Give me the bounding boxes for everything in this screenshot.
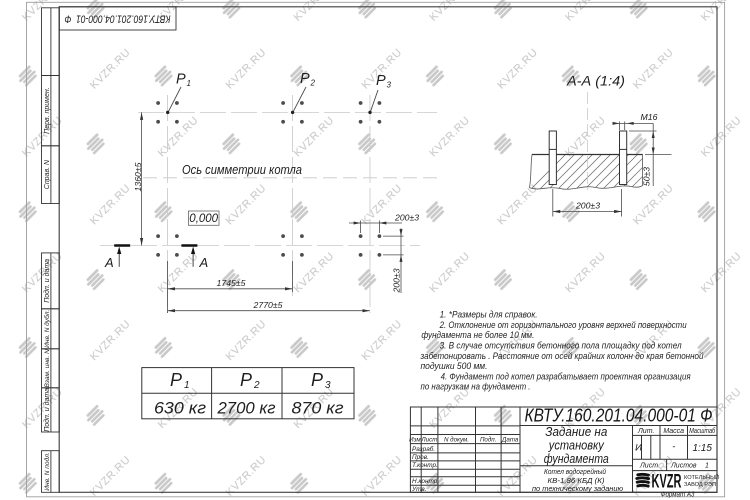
svg-text:Разраб.: Разраб. <box>412 445 435 453</box>
svg-text:Котел водогрейный: Котел водогрейный <box>544 467 606 476</box>
svg-text:630 кг: 630 кг <box>154 399 206 418</box>
svg-text:по нагрузкам на фундамент .: по нагрузкам на фундамент . <box>421 382 531 392</box>
svg-text:Дата: Дата <box>501 437 519 444</box>
svg-text:1: 1 <box>187 79 191 88</box>
svg-text:1360±5: 1360±5 <box>133 162 143 191</box>
svg-text:Перв. примен.: Перв. примен. <box>44 87 51 134</box>
svg-text:870 кг: 870 кг <box>292 399 344 418</box>
svg-text:200±3: 200±3 <box>394 212 419 222</box>
svg-text:по техническому заданию: по техническому заданию <box>532 484 624 493</box>
svg-text:Утв.: Утв. <box>411 486 427 493</box>
svg-text:Изм.: Изм. <box>409 437 422 444</box>
svg-text:Инв. N подл.: Инв. N подл. <box>43 452 51 491</box>
svg-text:А-А (1:4): А-А (1:4) <box>566 73 625 89</box>
svg-text:50±3: 50±3 <box>642 167 652 186</box>
svg-text:КВТУ.160.201.04.000-01 Ф: КВТУ.160.201.04.000-01 Ф <box>525 405 713 425</box>
svg-text:3. В случае отсутствия бет: 3. В случае отсутствия бетонного пола пл… <box>440 341 682 351</box>
svg-text:А: А <box>104 255 114 270</box>
svg-text:0,000: 0,000 <box>189 213 218 225</box>
svg-text:Подп.: Подп. <box>480 437 496 444</box>
svg-text:Р: Р <box>240 370 252 390</box>
svg-text:Взам. инв. N: Взам. инв. N <box>44 349 51 388</box>
svg-text:Ось симметрии котла: Ось симметрии котла <box>182 162 302 177</box>
svg-text:КОТЕЛЬНЫЙ: КОТЕЛЬНЫЙ <box>684 473 719 481</box>
svg-text:ЗАВОД РЭП: ЗАВОД РЭП <box>684 482 716 488</box>
svg-text:200±3: 200±3 <box>392 268 402 293</box>
svg-text:Р: Р <box>176 72 186 88</box>
svg-text:2700 кг: 2700 кг <box>217 399 276 418</box>
svg-text:А: А <box>199 255 209 270</box>
svg-text:И: И <box>635 443 642 454</box>
svg-text:Р: Р <box>376 73 386 89</box>
svg-text:-: - <box>672 442 675 452</box>
svg-text:Н.контр.: Н.контр. <box>412 478 439 485</box>
svg-text:подушки 500 мм.: подушки 500 мм. <box>421 361 488 371</box>
svg-text:2770±5: 2770±5 <box>253 300 283 310</box>
svg-text:3: 3 <box>387 81 392 90</box>
svg-text:1. *Размеры для справок.: 1. *Размеры для справок. <box>440 310 538 320</box>
svg-text:Листов: Листов <box>670 462 697 469</box>
svg-text:200±3: 200±3 <box>575 201 600 211</box>
svg-text:Р: Р <box>311 370 323 390</box>
svg-text:1: 1 <box>705 462 709 469</box>
svg-text:установку: установку <box>548 438 605 452</box>
svg-text:Подп. и дата: Подп. и дата <box>43 259 51 303</box>
svg-text:Инв. N дубл.: Инв. N дубл. <box>43 310 51 348</box>
svg-text:забетонировать . Расстояние: забетонировать . Расстояние от осей край… <box>420 351 704 361</box>
svg-text:Т.контр.: Т.контр. <box>412 462 438 469</box>
svg-text:4. Фундамент под котел раз: 4. Фундамент под котел разрабатывает про… <box>441 371 691 381</box>
svg-text:Подп. и дата: Подп. и дата <box>43 388 51 432</box>
svg-text:2: 2 <box>310 79 316 88</box>
svg-text:Р: Р <box>170 370 182 390</box>
svg-text:Масса: Масса <box>663 428 684 435</box>
svg-text:Задание на: Задание на <box>545 425 607 439</box>
svg-text:1745±5: 1745±5 <box>217 278 246 288</box>
svg-text:Р: Р <box>300 71 310 87</box>
svg-text:фундамента: фундамента <box>544 452 609 466</box>
svg-text:М16: М16 <box>641 112 658 122</box>
svg-text:N докум.: N докум. <box>444 437 469 444</box>
svg-text:Формат А3: Формат А3 <box>661 490 696 499</box>
svg-text:Масштаб: Масштаб <box>689 427 716 435</box>
svg-text:Лист: Лист <box>420 437 437 444</box>
svg-text:Справ. N: Справ. N <box>44 159 51 189</box>
svg-text:1:15: 1:15 <box>692 443 712 454</box>
svg-text:Пров.: Пров. <box>412 454 429 461</box>
svg-text:Лист: Лист <box>639 462 658 469</box>
svg-text:2. Отклонение от горизонтал: 2. Отклонение от горизонтального уровня … <box>439 320 687 330</box>
svg-text:1: 1 <box>184 380 190 391</box>
svg-text:фундамента не более 10 мм.: фундамента не более 10 мм. <box>421 330 534 340</box>
svg-text:КВТУ.160.201.04.000-01 Ф: КВТУ.160.201.04.000-01 Ф <box>64 12 170 24</box>
svg-text:3: 3 <box>325 380 331 391</box>
svg-text:Лит.: Лит. <box>637 428 654 435</box>
svg-text:2: 2 <box>253 380 260 391</box>
